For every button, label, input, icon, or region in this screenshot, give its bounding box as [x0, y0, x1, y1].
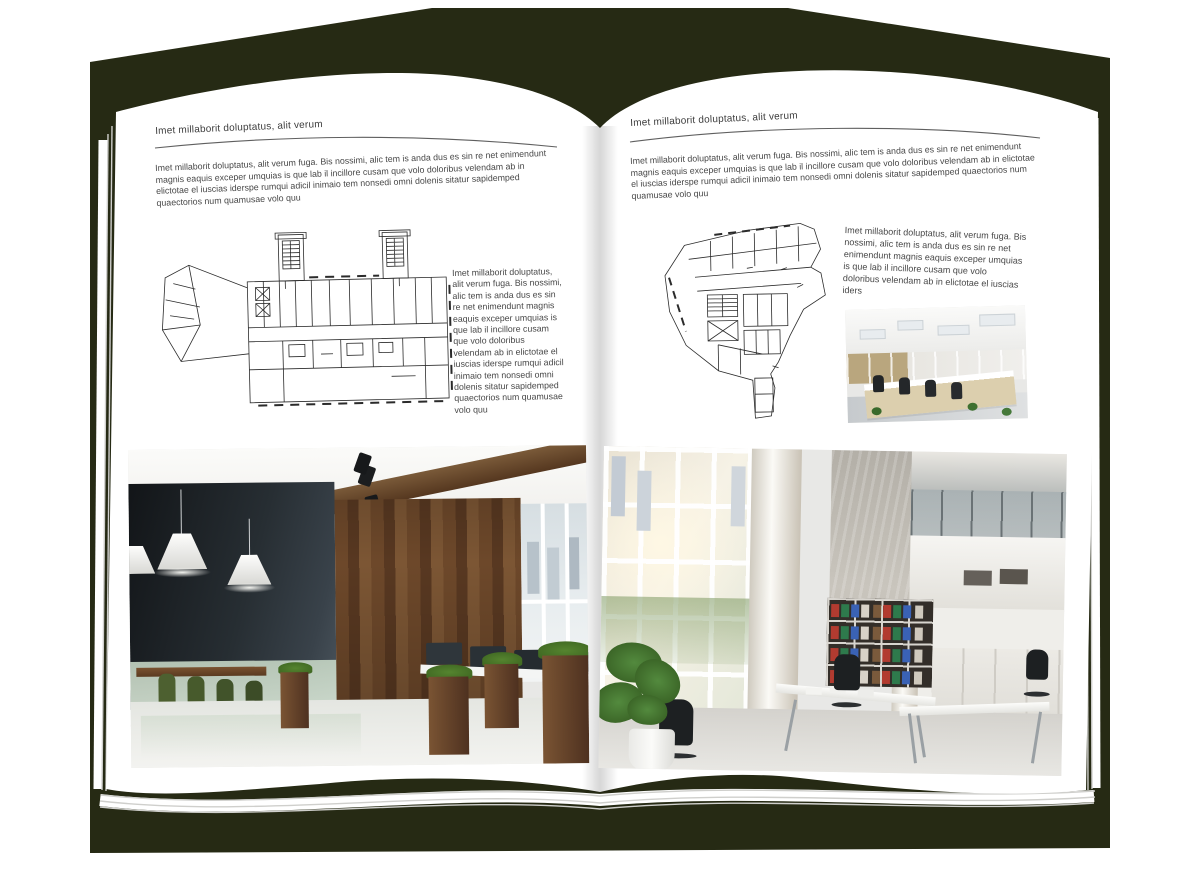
photo-binders-row	[831, 626, 839, 639]
photo-chair-base	[831, 702, 861, 708]
small-office-photo	[845, 305, 1028, 423]
photo-column	[747, 449, 802, 742]
right-office-photo	[598, 446, 1067, 776]
right-floor-plan-windows	[668, 226, 792, 332]
photo-light-panel	[937, 325, 969, 336]
photo-floor-reflection	[141, 714, 361, 758]
photo-desk-monitors	[426, 643, 462, 665]
photo-conference-table	[136, 667, 266, 677]
photo-office-chair	[834, 654, 861, 690]
right-sidebar-paragraph: Imet millaborit doluptatus, alit verum f…	[842, 224, 1027, 303]
left-floor-plan-windows	[255, 274, 452, 406]
photo-plant-pot	[628, 728, 675, 771]
photo-vent-grilles	[1000, 569, 1028, 584]
photo-city-skyline	[527, 542, 540, 594]
photo-wood-planter	[542, 655, 589, 763]
photo-light-panel	[860, 329, 886, 340]
photo-light-panel	[979, 314, 1015, 327]
photo-light-panel	[897, 320, 923, 331]
right-floor-plan	[650, 217, 845, 422]
photo-office-chair	[1026, 649, 1049, 679]
photo-binders-row	[831, 604, 839, 617]
left-floor-plan	[158, 225, 454, 416]
brochure-mockup: Imet millaborit doluptatus, alit verum I…	[0, 0, 1200, 891]
photo-wood-planter	[280, 672, 309, 728]
photo-mezzanine-ceiling	[911, 451, 1067, 494]
photo-glass-railing	[910, 489, 1066, 540]
left-office-photo	[128, 445, 589, 768]
left-floor-plan-lines	[160, 229, 449, 405]
photo-wood-planter	[428, 676, 469, 754]
photo-city-skyline	[611, 456, 626, 516]
photo-wood-planter	[484, 664, 519, 728]
right-floor-plan-lines	[664, 223, 827, 420]
photo-office-chairs	[873, 375, 884, 392]
left-sidebar-paragraph: Imet millaborit doluptatus, alit verum f…	[452, 266, 565, 416]
photo-window-mullion	[522, 599, 588, 604]
